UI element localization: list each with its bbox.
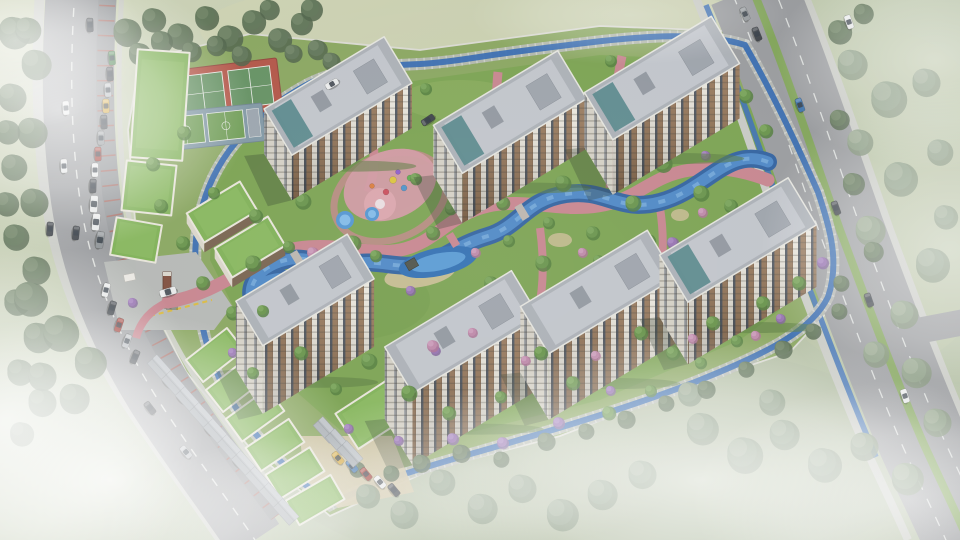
aerial-residential-render [0, 0, 960, 540]
fog-patch [0, 0, 960, 540]
fog-haze-layer [0, 0, 960, 540]
aerial-render-stage [0, 0, 960, 540]
